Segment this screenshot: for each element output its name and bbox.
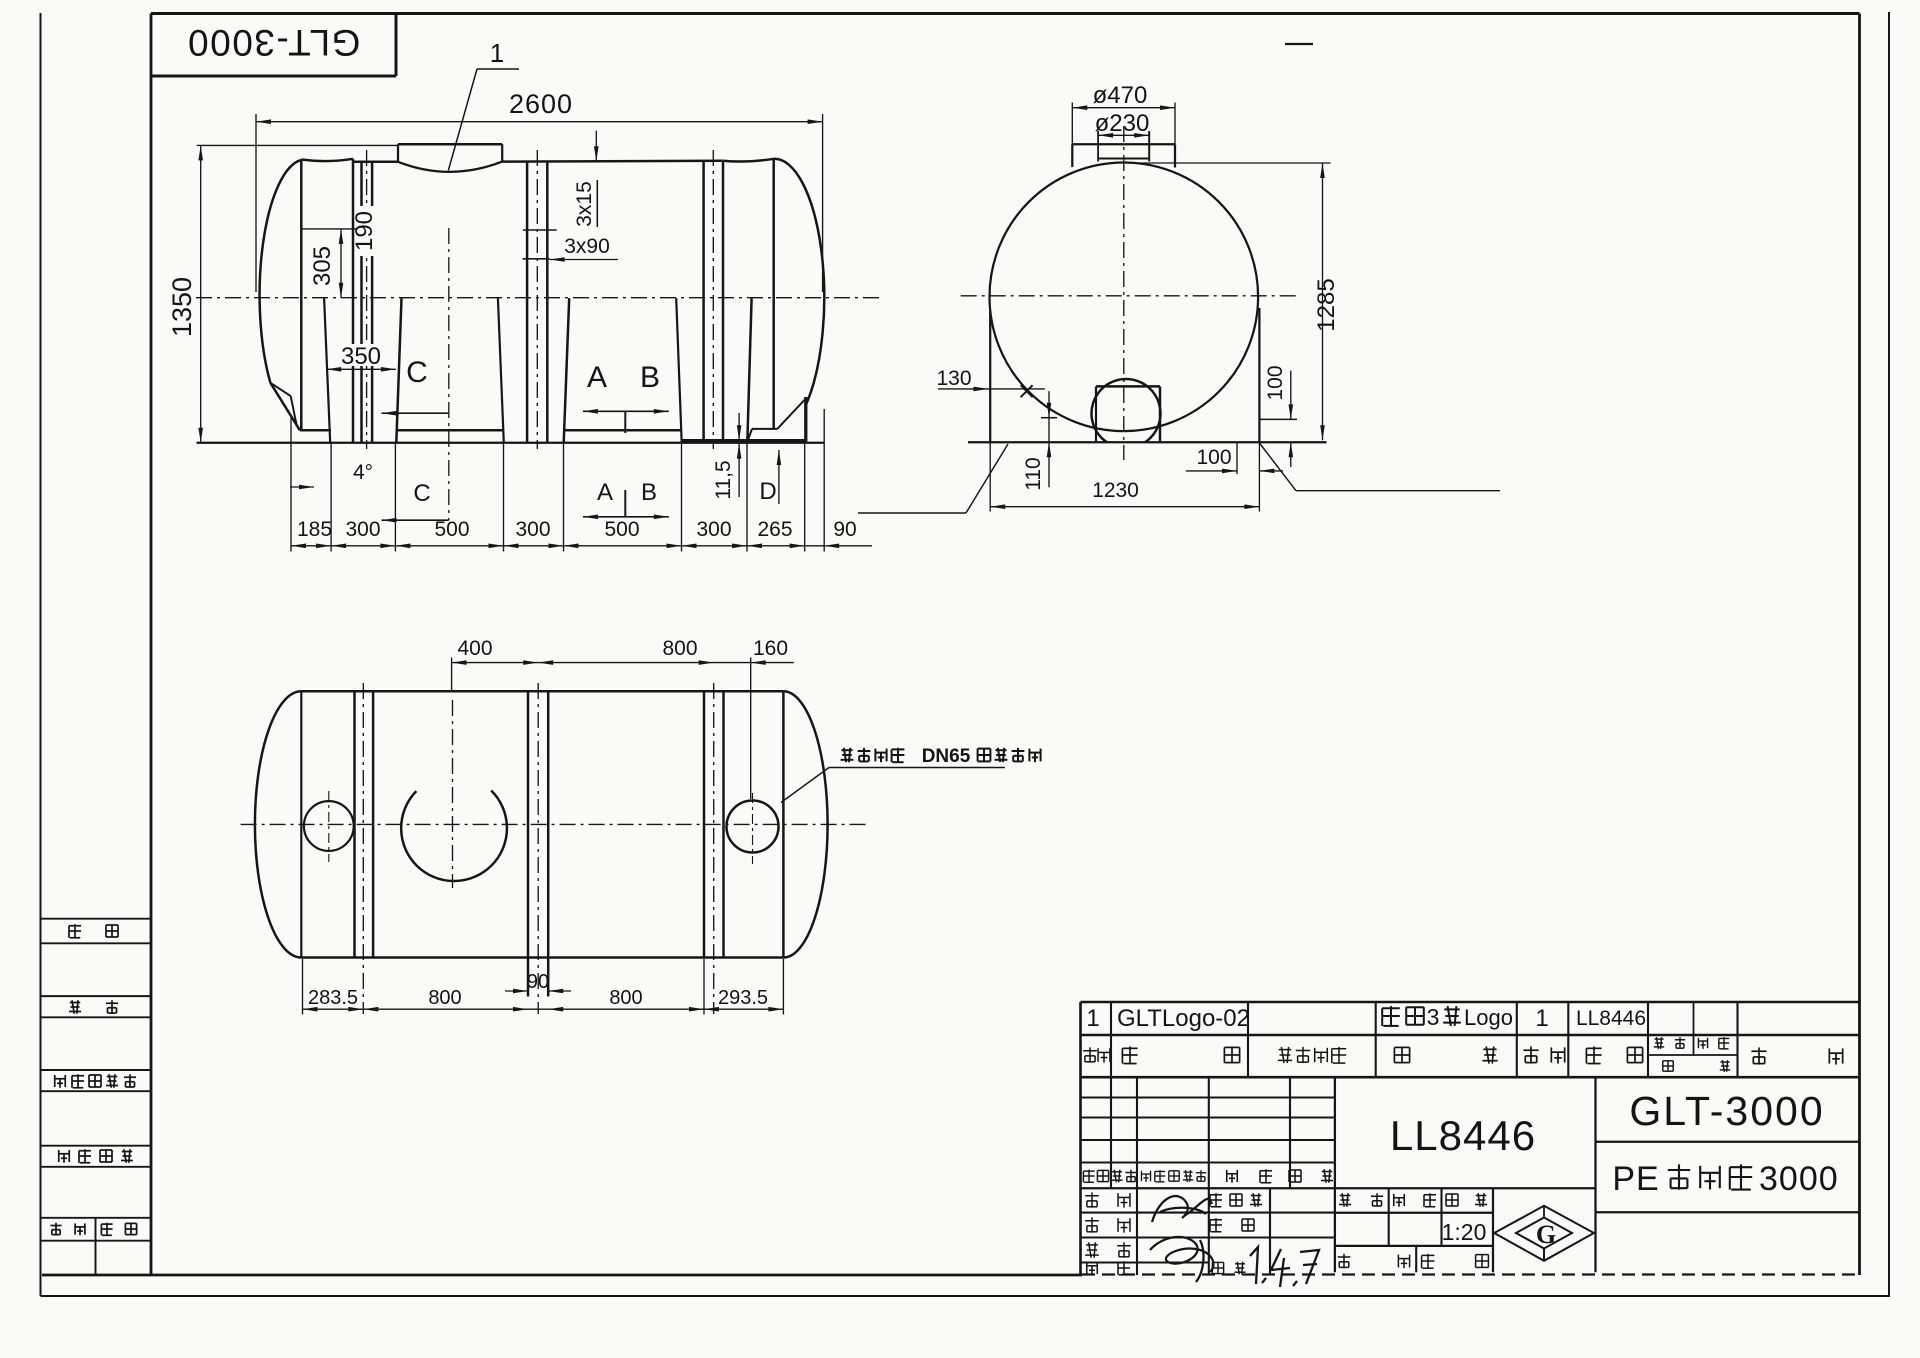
svg-text:LL8446: LL8446 xyxy=(1390,1112,1536,1159)
svg-text:2600: 2600 xyxy=(509,89,573,119)
svg-text:190: 190 xyxy=(351,211,378,251)
svg-text:90: 90 xyxy=(833,518,856,541)
svg-text:11,5: 11,5 xyxy=(712,460,735,499)
svg-text:300: 300 xyxy=(515,518,550,541)
svg-text:A: A xyxy=(597,479,613,506)
svg-text:350: 350 xyxy=(341,343,381,370)
svg-text:90: 90 xyxy=(527,971,549,993)
svg-text:C: C xyxy=(413,480,430,507)
svg-text:1: 1 xyxy=(1535,1005,1548,1032)
svg-text:283.5: 283.5 xyxy=(308,987,358,1009)
svg-text:4°: 4° xyxy=(353,461,373,484)
svg-text:GLT-3000: GLT-3000 xyxy=(1629,1088,1824,1134)
svg-text:1285: 1285 xyxy=(1313,278,1340,331)
svg-text:Logo: Logo xyxy=(1464,1005,1513,1030)
svg-text:1:20: 1:20 xyxy=(1442,1219,1487,1245)
svg-text:3x90: 3x90 xyxy=(564,235,610,258)
svg-text:800: 800 xyxy=(609,987,642,1009)
svg-text:3: 3 xyxy=(1427,1004,1440,1030)
svg-text:300: 300 xyxy=(696,518,731,541)
svg-text:305: 305 xyxy=(309,246,336,286)
svg-text:110: 110 xyxy=(1022,457,1045,490)
svg-text:LL8446: LL8446 xyxy=(1576,1007,1646,1030)
svg-text:500: 500 xyxy=(604,518,639,541)
svg-text:G: G xyxy=(1536,1220,1556,1249)
svg-text:3x15: 3x15 xyxy=(573,181,596,227)
svg-text:400: 400 xyxy=(457,637,492,660)
svg-text:500: 500 xyxy=(434,518,469,541)
svg-text:300: 300 xyxy=(345,518,380,541)
svg-text:GLT-3000: GLT-3000 xyxy=(187,22,361,63)
svg-text:C: C xyxy=(406,356,428,389)
svg-text:3000: 3000 xyxy=(1759,1160,1839,1198)
svg-text:1350: 1350 xyxy=(167,277,197,337)
svg-text:PE: PE xyxy=(1612,1160,1659,1198)
svg-text:800: 800 xyxy=(662,637,697,660)
svg-text:DN65: DN65 xyxy=(922,746,971,767)
svg-text:293.5: 293.5 xyxy=(718,987,768,1009)
svg-text:1230: 1230 xyxy=(1092,479,1139,502)
svg-text:130: 130 xyxy=(936,367,971,390)
svg-text:160: 160 xyxy=(753,637,788,660)
svg-text:D: D xyxy=(759,478,776,505)
svg-text:100: 100 xyxy=(1264,365,1287,400)
svg-text:A: A xyxy=(587,361,607,394)
svg-text:265: 265 xyxy=(757,518,792,541)
svg-text:100: 100 xyxy=(1196,446,1231,469)
svg-text:B: B xyxy=(641,479,657,506)
svg-text:B: B xyxy=(640,361,660,394)
svg-text:1: 1 xyxy=(1086,1005,1099,1032)
svg-text:800: 800 xyxy=(428,987,461,1009)
svg-text:ø470: ø470 xyxy=(1093,82,1148,109)
svg-text:1: 1 xyxy=(490,38,504,68)
svg-text:GLTLogo-02: GLTLogo-02 xyxy=(1117,1005,1250,1032)
svg-text:ø230: ø230 xyxy=(1095,110,1150,137)
svg-text:185: 185 xyxy=(297,518,332,541)
